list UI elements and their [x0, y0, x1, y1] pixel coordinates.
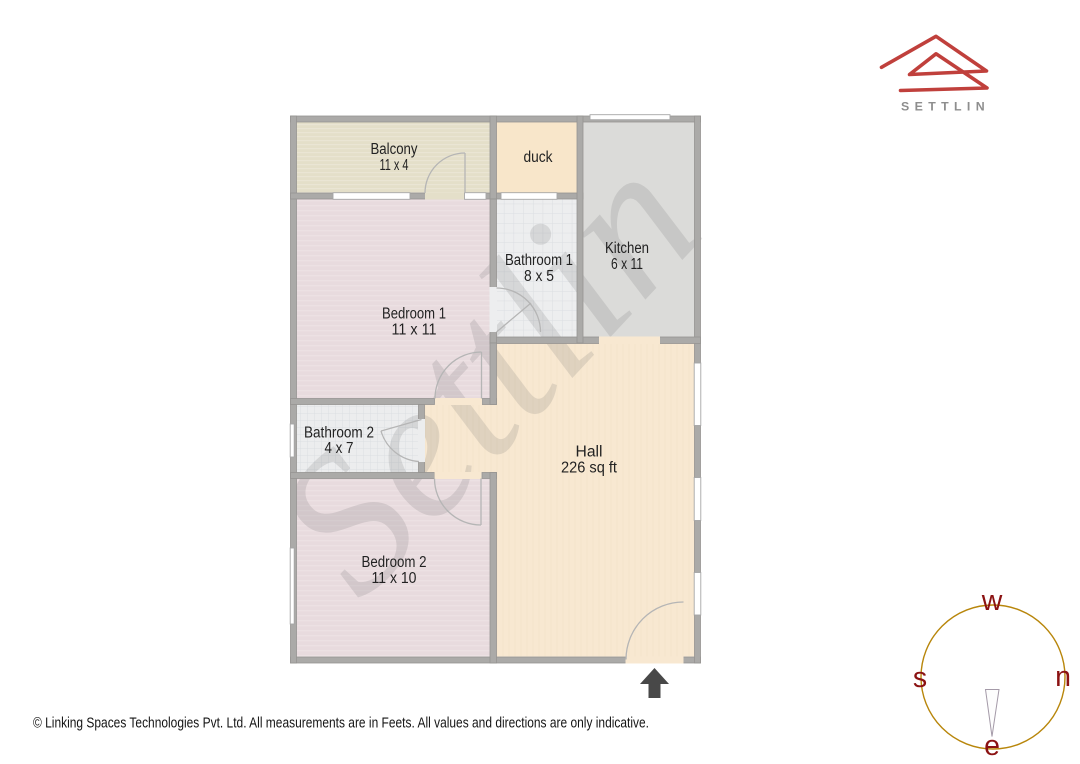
- svg-text:4 x 7: 4 x 7: [325, 440, 354, 457]
- svg-text:Balcony: Balcony: [371, 141, 418, 158]
- svg-text:n: n: [1055, 661, 1071, 693]
- svg-text:226 sq ft: 226 sq ft: [561, 460, 618, 477]
- svg-text:6 x 11: 6 x 11: [611, 256, 643, 273]
- svg-text:Kitchen: Kitchen: [605, 240, 649, 257]
- svg-text:11 x 10: 11 x 10: [372, 570, 417, 587]
- svg-text:Hall: Hall: [576, 444, 603, 461]
- svg-text:© Linking Spaces Technologies: © Linking Spaces Technologies Pvt. Ltd. …: [33, 716, 649, 732]
- svg-text:Bathroom 1: Bathroom 1: [505, 252, 573, 269]
- svg-text:duck: duck: [524, 149, 553, 166]
- svg-text:w: w: [981, 585, 1003, 617]
- svg-text:11 x 11: 11 x 11: [392, 322, 437, 339]
- svg-text:11 x 4: 11 x 4: [380, 157, 409, 174]
- svg-text:SETTLIN: SETTLIN: [901, 102, 990, 114]
- svg-text:Bedroom 1: Bedroom 1: [382, 306, 446, 323]
- svg-text:Bedroom 2: Bedroom 2: [362, 554, 427, 571]
- svg-text:Bathroom 2: Bathroom 2: [304, 425, 374, 442]
- svg-text:s: s: [913, 662, 927, 694]
- svg-text:8 x 5: 8 x 5: [524, 268, 554, 285]
